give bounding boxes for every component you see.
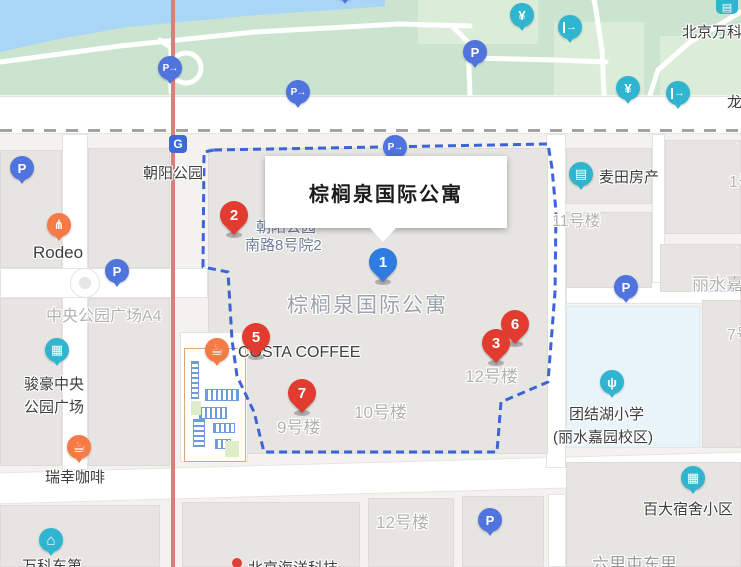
building-icon[interactable]: ▦ (45, 338, 69, 362)
map-label: 瑞幸咖啡 (45, 466, 105, 487)
map-label: 北京万科 (682, 21, 741, 42)
parking-icon[interactable]: P (463, 40, 487, 64)
map-label: 丽水嘉园 (692, 270, 741, 295)
map-label: 六里屯东里 (592, 550, 677, 567)
marker-3[interactable]: 3 (476, 323, 516, 363)
ticket-icon[interactable]: ¥ (510, 3, 534, 27)
building-icon[interactable]: ▦ (681, 466, 705, 490)
map-label: 公园广场 (24, 396, 84, 417)
map-label: 7号楼 (727, 321, 741, 345)
exit-icon[interactable]: → (666, 81, 690, 105)
coffee-icon[interactable]: ☕ (205, 338, 229, 362)
map-canvas[interactable]: 朝阳公园RodeoCOSTA COFFEE麦田房产团结湖小学(丽水嘉园校区)百大… (0, 0, 741, 567)
parking-arrow-icon[interactable]: P→ (158, 56, 182, 80)
marker-5[interactable]: 5 (236, 317, 276, 357)
parking-icon[interactable]: P (614, 275, 638, 299)
map-label: 12号楼 (376, 508, 429, 533)
map-label: 12号楼 (465, 362, 518, 387)
popup-title: 棕榈泉国际公寓 (309, 178, 463, 207)
south-side-road (548, 494, 566, 567)
parking-arrow-icon[interactable]: P→ (286, 80, 310, 104)
map-label: (丽水嘉园校区) (553, 426, 653, 447)
restaurant-icon[interactable]: ⋔ (47, 213, 71, 237)
map-label: 麦田房产 (599, 166, 659, 187)
city-block (462, 496, 544, 567)
map-label: 龙 (727, 91, 741, 112)
map-label: 骏豪中央 (24, 373, 84, 394)
plaza-road (0, 268, 208, 298)
map-label: 中央公园广场A4 (46, 302, 162, 326)
parking-icon[interactable]: P (478, 508, 502, 532)
map-label: 9号楼 (277, 413, 320, 438)
brand-icon[interactable]: ▤ (716, 0, 738, 14)
map-label: 朝阳公园 (143, 162, 203, 183)
east-road (546, 134, 566, 468)
map-label: 南路8号院2 (245, 234, 322, 255)
map-label: 百大宿舍小区 (643, 498, 733, 519)
parking-icon[interactable]: P (10, 156, 34, 180)
coffee-icon[interactable]: ☕ (67, 435, 91, 459)
poi-dot-icon (232, 558, 242, 567)
exit-icon[interactable]: → (558, 15, 582, 39)
map-label: 团结湖小学 (569, 403, 644, 424)
shop-icon[interactable]: ▤ (569, 162, 593, 186)
road-center-line (0, 129, 741, 132)
subway-station-icon[interactable]: G (169, 135, 187, 153)
map-label: 11号楼 (552, 207, 601, 231)
map-label: 1号楼 (729, 168, 741, 192)
marker-7[interactable]: 7 (282, 373, 322, 413)
roundabout (70, 268, 100, 298)
map-label: Rodeo (33, 243, 83, 263)
house-icon[interactable]: ⌂ (39, 528, 63, 552)
info-popup[interactable]: 棕榈泉国际公寓 (265, 156, 507, 228)
parking-icon[interactable]: P (105, 259, 129, 283)
ticket-icon[interactable]: ¥ (616, 76, 640, 100)
sprout-icon[interactable]: ψ (600, 370, 624, 394)
map-label: 北京海洋科技 (248, 557, 338, 567)
map-label: 棕榈泉国际公寓 (287, 289, 448, 319)
marker-2[interactable]: 2 (214, 195, 254, 235)
map-label: 10号楼 (354, 398, 407, 423)
